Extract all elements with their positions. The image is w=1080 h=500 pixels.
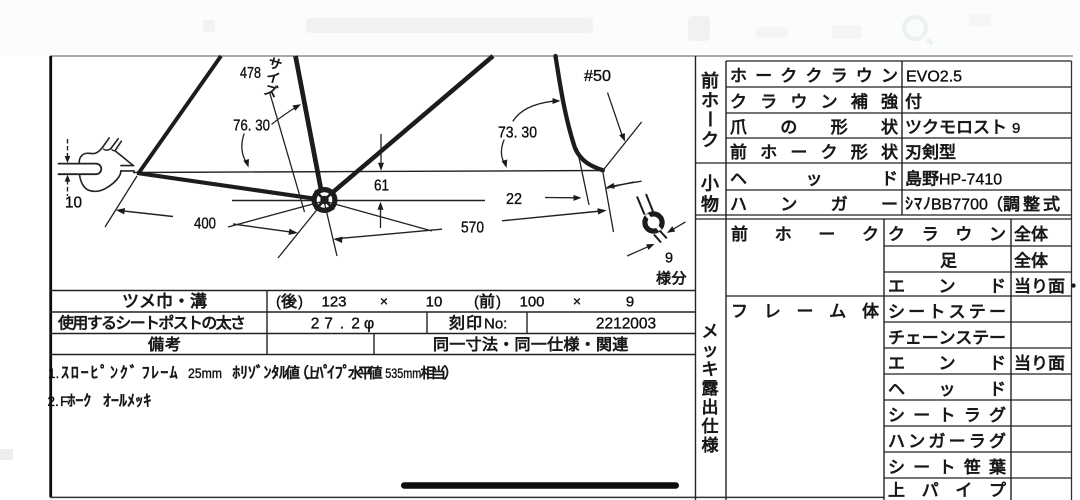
svg-text:): ) [496,294,501,311]
svg-text:10: 10 [426,294,443,311]
svg-text:25mm: 25mm [188,366,222,381]
svg-text:9: 9 [1012,120,1020,137]
svg-text:2.: 2. [48,394,59,409]
svg-text:100: 100 [519,294,544,311]
svg-text:2: 2 [351,316,360,333]
svg-text:×: × [380,293,388,309]
svg-text:76. 30: 76. 30 [233,118,270,135]
svg-text:×: × [573,293,581,309]
svg-text:#50: #50 [584,68,611,85]
svg-text:73. 30: 73. 30 [498,125,537,142]
svg-text:7: 7 [324,316,333,333]
svg-text:2: 2 [311,316,320,333]
svg-text:φ: φ [364,316,374,333]
svg-text:): ) [298,294,303,311]
svg-text:(: ( [276,294,281,311]
svg-text:BB7700: BB7700 [931,197,988,214]
svg-text:400: 400 [194,216,216,233]
svg-text:F: F [60,393,69,409]
svg-text:570: 570 [461,220,484,237]
svg-text:No:: No: [484,316,507,333]
svg-text:535mm: 535mm [385,366,421,381]
svg-text:9: 9 [665,251,673,267]
svg-text:(: ( [474,294,479,311]
svg-text:1.: 1. [48,366,59,381]
svg-text:EVO2.5: EVO2.5 [906,69,962,86]
svg-text:2212003: 2212003 [596,316,656,333]
svg-text:61: 61 [374,178,389,195]
svg-text:22: 22 [506,191,522,208]
svg-text:478: 478 [240,65,261,82]
svg-text:HP-7410: HP-7410 [939,172,1002,189]
svg-text:9: 9 [626,294,634,311]
svg-text:123: 123 [321,294,346,311]
svg-text:.: . [340,316,344,333]
svg-text:10: 10 [65,195,82,212]
